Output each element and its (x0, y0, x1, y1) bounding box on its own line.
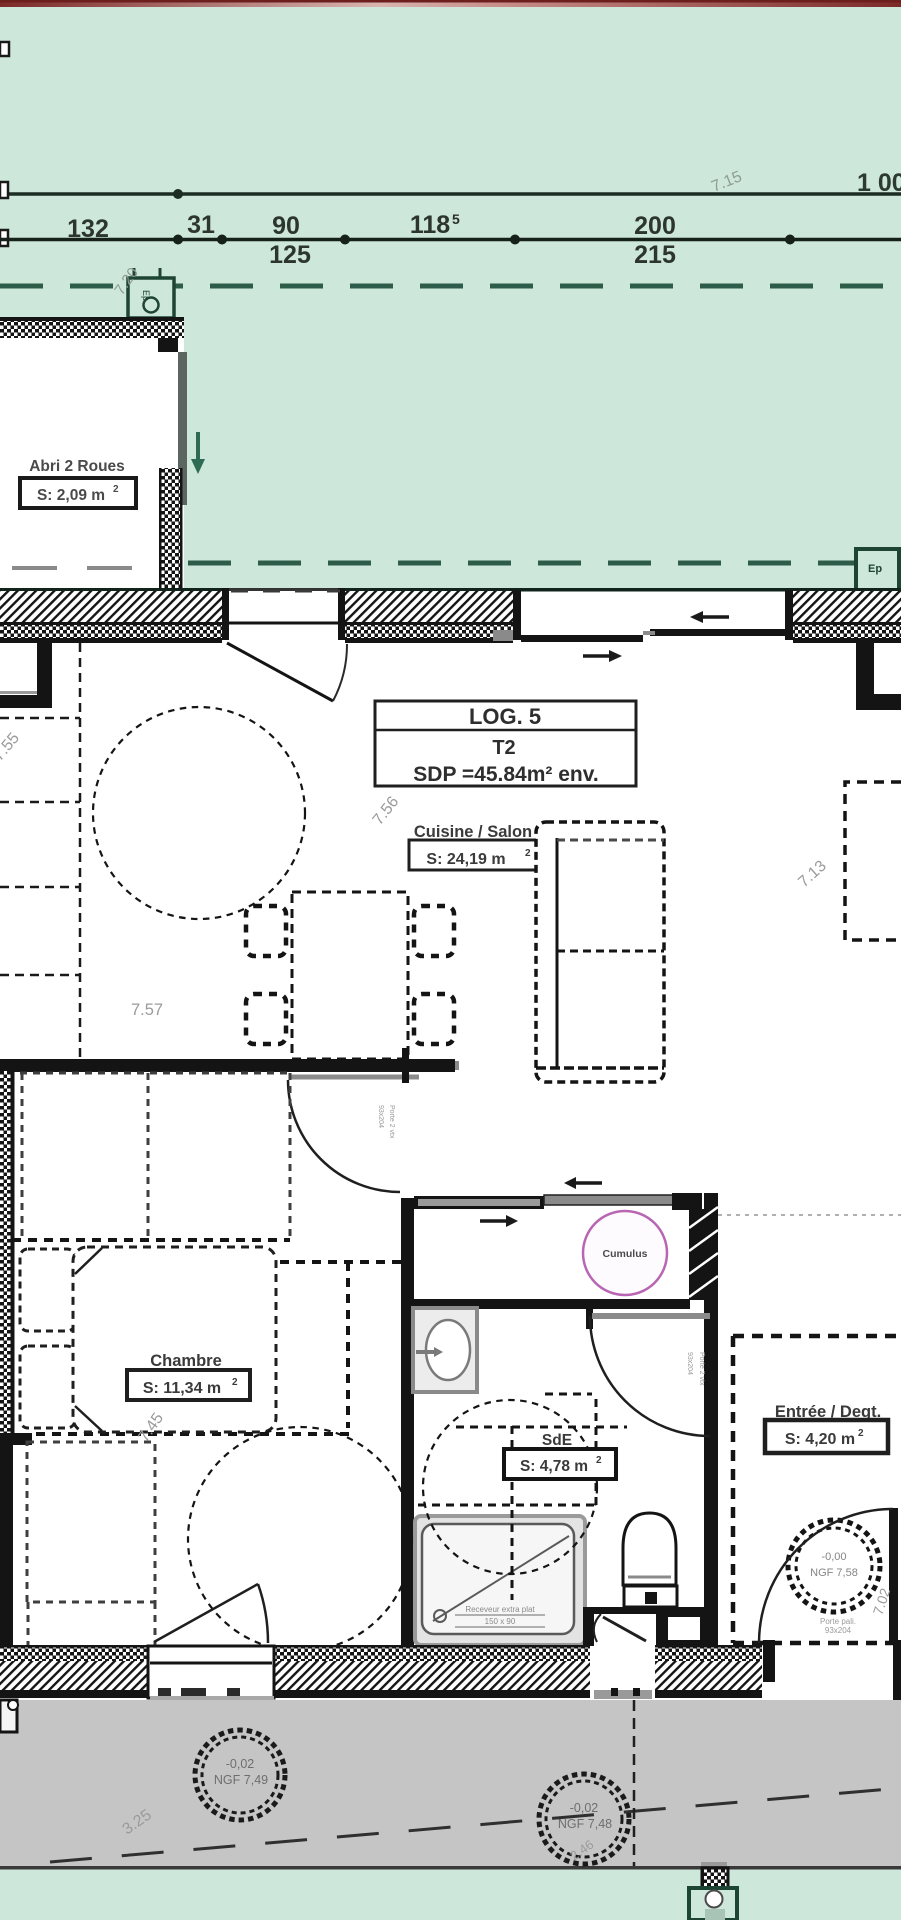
svg-text:-0,02: -0,02 (570, 1801, 599, 1815)
svg-text:125: 125 (269, 241, 311, 269)
svg-text:Cumulus: Cumulus (603, 1248, 648, 1260)
svg-text:SdE: SdE (542, 1432, 572, 1449)
svg-text:NGF 7,48: NGF 7,48 (558, 1817, 612, 1831)
svg-text:93x204: 93x204 (825, 1626, 852, 1635)
svg-text:2: 2 (232, 1377, 238, 1388)
svg-text:2: 2 (113, 484, 119, 495)
svg-text:Cuisine / Salon: Cuisine / Salon (414, 823, 532, 841)
svg-text:93x204: 93x204 (686, 1352, 693, 1375)
svg-text:132: 132 (67, 215, 109, 243)
svg-text:150 x 90: 150 x 90 (485, 1617, 516, 1626)
svg-text:S: 2,09 m: S: 2,09 m (37, 487, 105, 504)
svg-text:S: 24,19 m: S: 24,19 m (426, 851, 505, 868)
svg-text:NGF 7,49: NGF 7,49 (214, 1773, 268, 1787)
svg-text:Ep: Ep (868, 563, 882, 575)
svg-text:215: 215 (634, 241, 676, 269)
svg-text:-0,02: -0,02 (226, 1757, 255, 1771)
svg-text:90: 90 (272, 212, 300, 240)
svg-text:SDP =45.84m² env.: SDP =45.84m² env. (413, 763, 598, 786)
svg-text:2: 2 (858, 1428, 864, 1439)
svg-text:5: 5 (452, 211, 460, 227)
svg-text:7.57: 7.57 (131, 1001, 163, 1019)
svg-text:1 00: 1 00 (857, 169, 901, 197)
svg-text:Porte 2 vtx: Porte 2 vtx (698, 1352, 705, 1386)
svg-text:-0,00: -0,00 (821, 1551, 846, 1563)
svg-text:200: 200 (634, 212, 676, 240)
svg-text:31: 31 (187, 211, 215, 239)
svg-text:Abri 2 Roues: Abri 2 Roues (29, 458, 125, 475)
svg-text:LOG. 5: LOG. 5 (469, 704, 541, 729)
svg-text:NGF 7,58: NGF 7,58 (810, 1567, 858, 1579)
svg-text:93x204: 93x204 (377, 1105, 384, 1128)
svg-text:S: 11,34 m: S: 11,34 m (143, 1380, 221, 1397)
svg-text:Receveur extra plat: Receveur extra plat (465, 1605, 535, 1614)
svg-text:118: 118 (410, 211, 450, 239)
svg-text:Chambre: Chambre (150, 1352, 222, 1370)
svg-text:Ep: Ep (141, 290, 151, 301)
svg-text:S: 4,20 m: S: 4,20 m (785, 1431, 855, 1448)
svg-text:T2: T2 (492, 737, 515, 759)
svg-text:Porte pali.: Porte pali. (820, 1617, 856, 1626)
svg-text:2: 2 (596, 1455, 602, 1466)
svg-text:2: 2 (525, 848, 531, 859)
svg-text:S: 4,78 m: S: 4,78 m (520, 1458, 588, 1475)
svg-text:Porte 2 vtx: Porte 2 vtx (388, 1105, 395, 1139)
